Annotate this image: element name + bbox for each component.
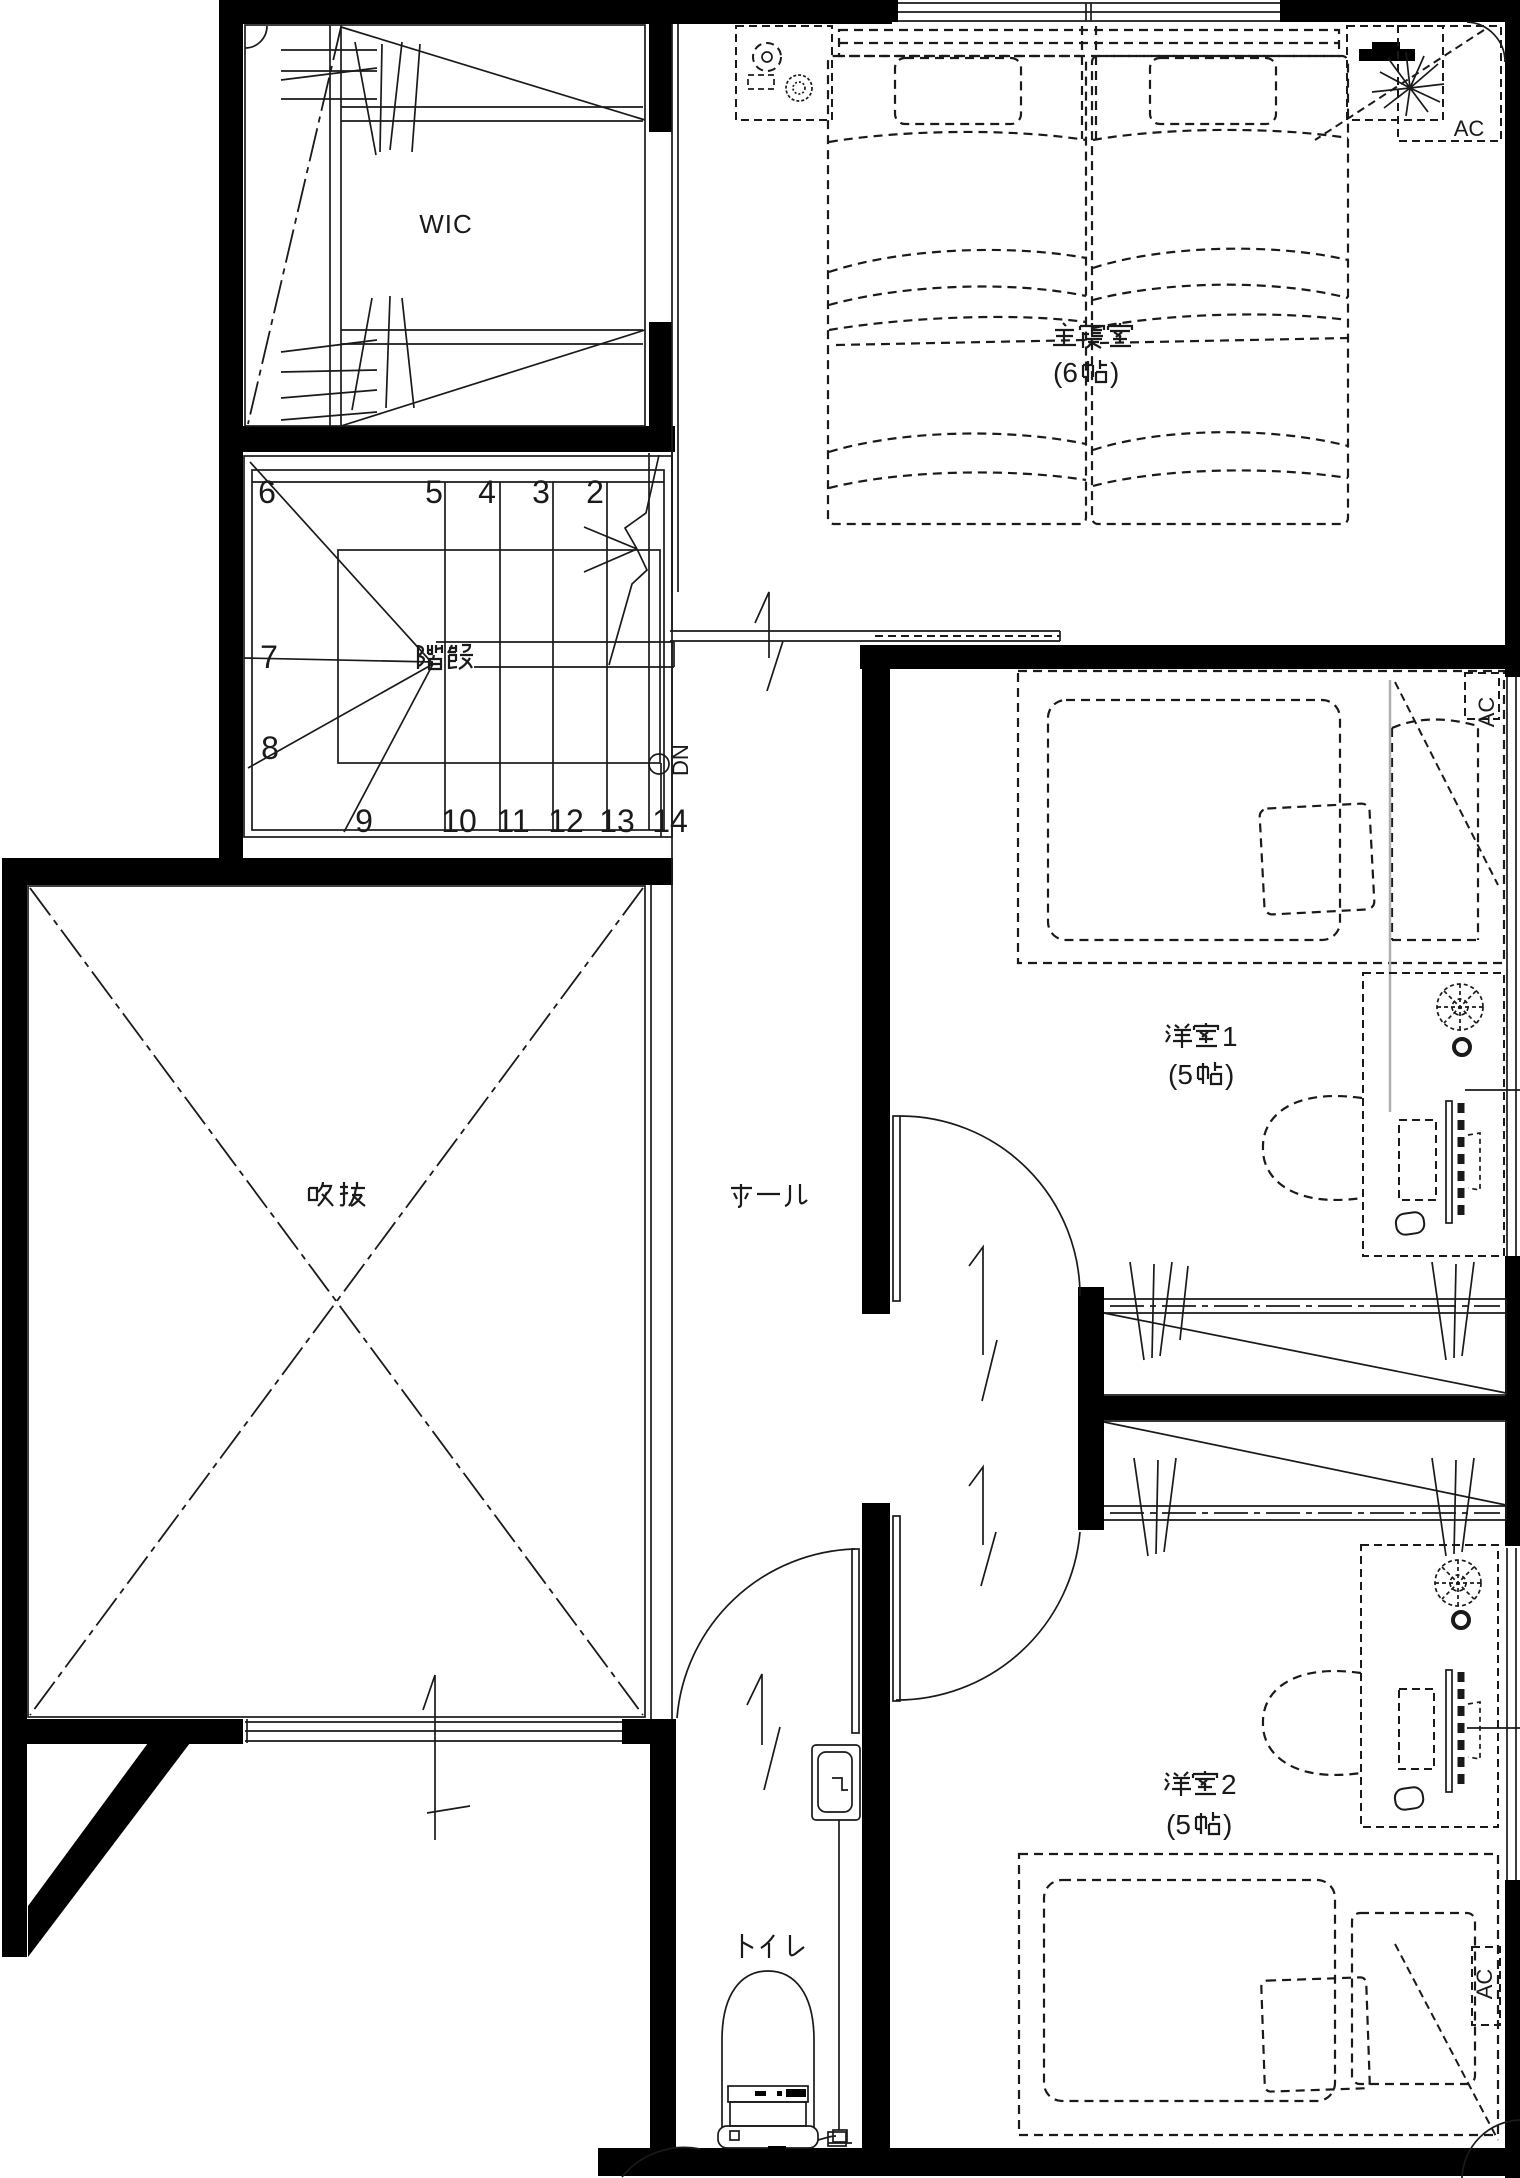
- svg-text:): ): [1223, 1809, 1232, 1840]
- svg-text:12: 12: [548, 803, 584, 839]
- svg-text:2: 2: [586, 474, 604, 510]
- svg-text:2: 2: [1221, 1769, 1237, 1800]
- svg-text:8: 8: [261, 730, 279, 766]
- svg-text:3: 3: [532, 474, 550, 510]
- svg-text:11: 11: [496, 803, 529, 839]
- svg-text:AC: AC: [1474, 697, 1499, 728]
- svg-text:(6: (6: [1053, 357, 1078, 388]
- svg-text:13: 13: [599, 803, 635, 839]
- svg-text:(5: (5: [1168, 1059, 1193, 1090]
- svg-text:AC: AC: [1454, 116, 1485, 141]
- svg-text:): ): [1225, 1059, 1234, 1090]
- svg-text:10: 10: [441, 803, 477, 839]
- svg-text:5: 5: [425, 474, 443, 510]
- svg-text:WIC: WIC: [419, 209, 473, 239]
- svg-text:4: 4: [478, 474, 496, 510]
- svg-text:9: 9: [355, 803, 373, 839]
- svg-text:1: 1: [1222, 1021, 1238, 1052]
- svg-text:AC: AC: [1472, 1969, 1497, 2000]
- svg-text:6: 6: [258, 474, 276, 510]
- svg-text:(5: (5: [1166, 1809, 1191, 1840]
- svg-text:14: 14: [652, 803, 688, 839]
- svg-text:): ): [1110, 357, 1119, 388]
- svg-text:7: 7: [260, 639, 278, 675]
